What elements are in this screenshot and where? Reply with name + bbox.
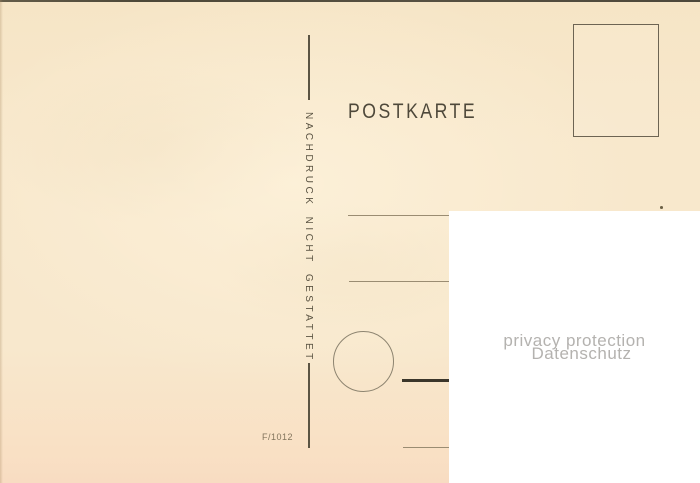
imprint-code: F/1012: [262, 432, 293, 442]
divider-rule-bottom: [308, 363, 310, 448]
paper-speck: [660, 206, 663, 209]
postcard-title: POSTKARTE: [348, 100, 477, 124]
scan-top-edge: [0, 0, 700, 2]
privacy-overlay: privacy protection Datenschutz: [449, 211, 700, 483]
stamp-box: [573, 24, 659, 137]
postmark-circle: [333, 331, 394, 392]
scan-left-edge: [0, 0, 3, 483]
divider-rule-top: [308, 35, 310, 100]
postcard-back: NACHDRUCK NICHT GESTATTET POSTKARTE F/10…: [0, 0, 700, 483]
reprint-notice-vertical-text: NACHDRUCK NICHT GESTATTET: [303, 112, 314, 363]
privacy-overlay-line-2: Datenschutz: [532, 347, 632, 360]
